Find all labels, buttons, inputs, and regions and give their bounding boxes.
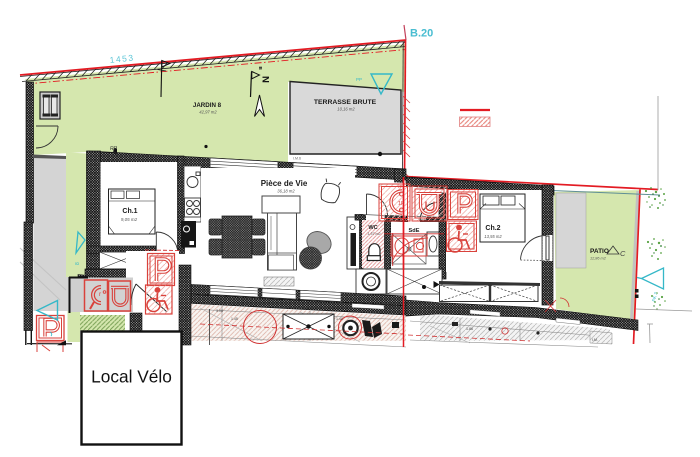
svg-text:PP: PP <box>356 77 362 82</box>
svg-text:JARDIN 8: JARDIN 8 <box>193 102 222 109</box>
svg-text:36,18 m2: 36,18 m2 <box>277 189 295 194</box>
svg-text:10,16 m2: 10,16 m2 <box>337 107 355 112</box>
svg-text:1.86: 1.86 <box>466 327 473 331</box>
svg-text:rP: rP <box>398 184 403 189</box>
svg-text:C: C <box>620 249 626 258</box>
svg-text:I.M.: I.M. <box>592 338 598 342</box>
svg-text:1,57 m2: 1,57 m2 <box>368 232 381 236</box>
svg-text:1.40: 1.40 <box>336 317 343 321</box>
svg-text:TERRASSE BRUTE: TERRASSE BRUTE <box>314 99 377 106</box>
svg-text:Ch.1: Ch.1 <box>122 208 137 215</box>
svg-text:1.45: 1.45 <box>231 317 238 321</box>
svg-text:42,97 m2: 42,97 m2 <box>199 110 217 115</box>
svg-text:12,86 m2: 12,86 m2 <box>590 257 607 261</box>
svg-text:PATIO: PATIO <box>590 248 609 255</box>
svg-text:8: 8 <box>75 262 81 265</box>
svg-text:I.M.6: I.M.6 <box>293 157 301 161</box>
svg-text:N: N <box>260 76 271 83</box>
svg-text:Ch.2: Ch.2 <box>485 225 500 232</box>
svg-text:Pièce de Vie: Pièce de Vie <box>261 179 308 188</box>
svg-text:Local Vélo: Local Vélo <box>91 367 172 387</box>
svg-text:13,55 m2: 13,55 m2 <box>484 234 502 239</box>
svg-text:SdE: SdE <box>409 228 420 234</box>
svg-text:WC: WC <box>368 225 377 231</box>
svg-text:9,05 m2: 9,05 m2 <box>121 217 138 222</box>
svg-text:B.20: B.20 <box>410 28 433 40</box>
svg-text:RP: RP <box>110 146 118 152</box>
svg-text:3.08: 3.08 <box>216 309 223 313</box>
